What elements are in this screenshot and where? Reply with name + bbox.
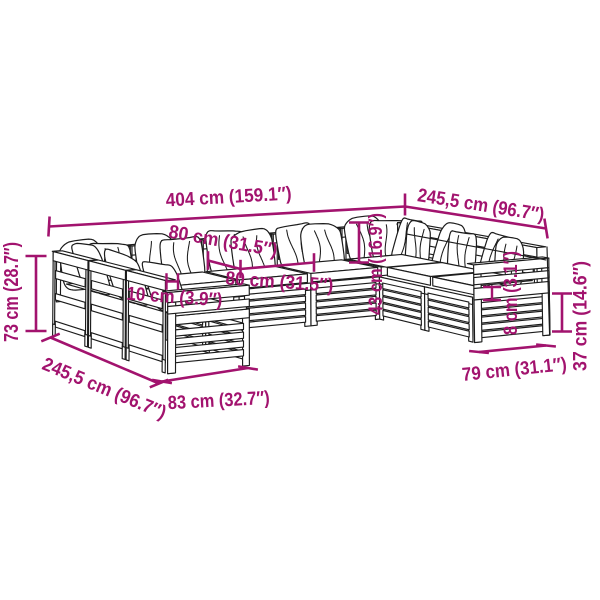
svg-text:37 cm (14.6″): 37 cm (14.6″) <box>571 261 592 371</box>
svg-text:8 cm (3.1″): 8 cm (3.1″) <box>501 251 522 335</box>
svg-text:43 cm (16.9″): 43 cm (16.9″) <box>366 213 387 315</box>
svg-text:73 cm (28.7″): 73 cm (28.7″) <box>1 242 23 342</box>
